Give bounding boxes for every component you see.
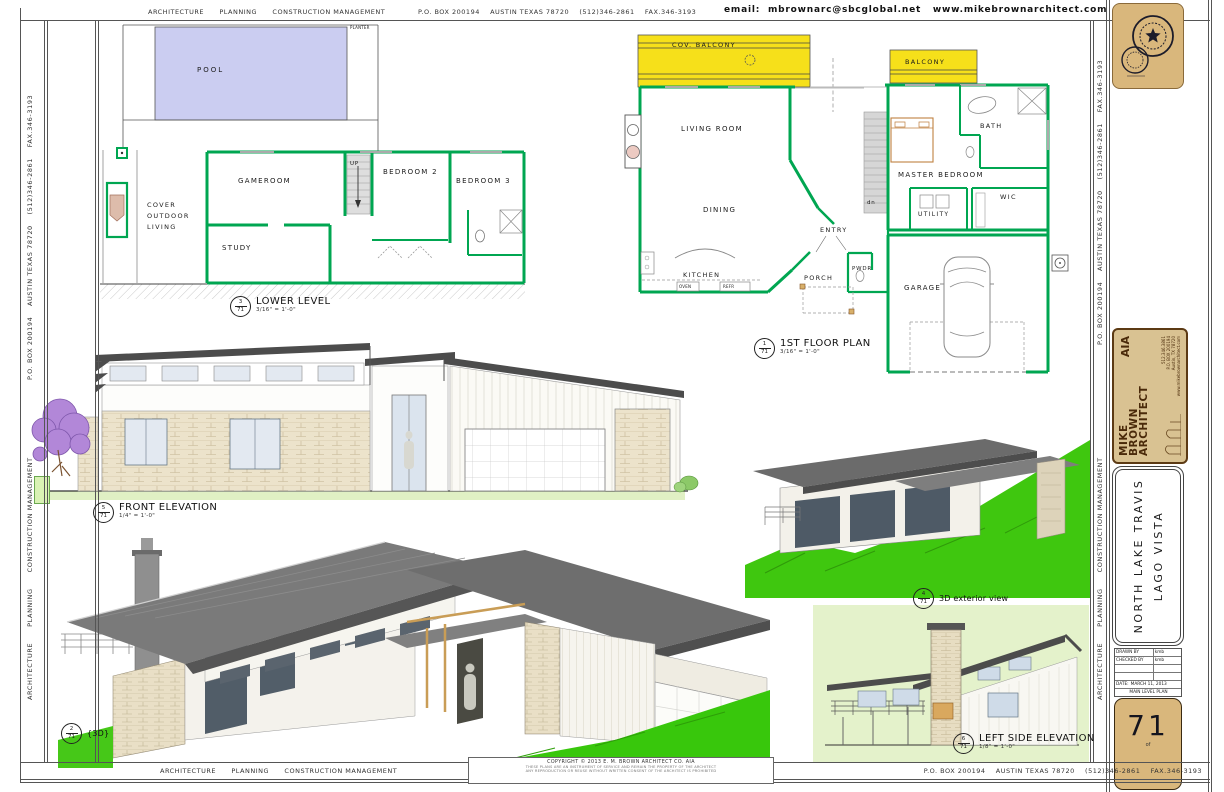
architectural-drawing-sheet: ARCHITECTURE PLANNING CONSTRUCTION MANAG… <box>0 0 1224 792</box>
view-scale: 1/8" = 1'-0" <box>979 744 1095 750</box>
view-title: LEFT SIDE ELEVATION <box>979 733 1095 744</box>
date-value: MARCH 11, 2013 <box>1131 681 1167 688</box>
architect-logo-card: MIKE BROWN ARCHITECT AIA 512.346.3861 P.… <box>1112 328 1188 464</box>
room-label-utility: UTILITY <box>918 211 949 218</box>
sheet-number: 71 <box>1115 709 1181 742</box>
logo-name: MIKE BROWN ARCHITECT <box>1119 386 1149 456</box>
drawn-by-value: kmb <box>1154 649 1181 656</box>
bottombar-firm-text: ARCHITECTURE PLANNING CONSTRUCTION MANAG… <box>160 767 397 775</box>
checked-by-label: CHECKED BY <box>1115 657 1154 664</box>
exterior-3d-drawing <box>745 413 1090 598</box>
architect-seal <box>1112 3 1184 89</box>
sheet-of: of <box>1115 742 1181 748</box>
room-label-bath: BATH <box>980 122 1002 130</box>
lower-level-plan-drawing <box>60 18 580 308</box>
room-label-gameroom: GAMEROOM <box>238 177 291 185</box>
room-label-study: STUDY <box>222 244 252 252</box>
room-label-pwdr: PWDR <box>852 266 872 272</box>
sheet-number-box: 71 of <box>1114 698 1182 790</box>
checked-by-value: kmb <box>1154 657 1181 664</box>
right-margin-firm-text: ARCHITECTURE PLANNING CONSTRUCTION MANAG… <box>1096 457 1104 700</box>
drawn-by-label: DRAWN BY <box>1115 649 1154 656</box>
room-label-cover-outdoor-living: COVER OUTDOOR LIVING <box>147 200 203 233</box>
view-title: LOWER LEVEL <box>256 296 330 307</box>
view-label-exterior-3d: 4 71 3D exterior view <box>913 588 1008 609</box>
room-label-oven: OVEN <box>679 284 691 289</box>
plan-title: MAIN LEVEL PLAN <box>1129 689 1167 696</box>
room-label-kitchen: KITCHEN <box>683 271 720 279</box>
first-floor-plan-drawing <box>620 30 1075 380</box>
right-margin-address-text: P.O. BOX 200194 AUSTIN TEXAS 78720 (512)… <box>1096 60 1104 345</box>
view-title: FRONT ELEVATION <box>119 502 217 513</box>
logo-building-sketch-icon <box>1161 414 1181 456</box>
detail-bubble-big-3d: 2 71 <box>61 723 82 744</box>
room-label-bedroom2: BEDROOM 2 <box>383 168 438 176</box>
room-label-balcony: BALCONY <box>905 58 945 66</box>
bottombar-address-text: P.O. BOX 200194 AUSTIN TEXAS 78720 (512)… <box>924 767 1202 775</box>
view-label-left-side-elevation: 6 71 LEFT SIDE ELEVATION 1/8" = 1'-0" <box>953 733 1095 754</box>
view-label-first-floor: 1 71 1ST FLOOR PLAN 3/16" = 1'-0" <box>754 338 871 359</box>
detail-bubble-lower-level: 3 71 <box>230 296 251 317</box>
left-margin-address-text: P.O. BOX 200194 AUSTIN TEXAS 78720 (512)… <box>26 95 34 380</box>
room-label-cov-balcony: COV. BALCONY <box>672 41 736 49</box>
date-label: DATE: <box>1116 681 1129 688</box>
project-name-line2: LAGO VISTA <box>1152 511 1165 602</box>
big-3d-drawing <box>55 526 770 768</box>
room-label-dn: dn <box>867 200 876 206</box>
room-label-living-room: LIVING ROOM <box>681 125 743 133</box>
room-label-refr: REFR <box>723 284 734 289</box>
room-label-up: UP <box>350 161 359 167</box>
copyright-line3: ANY REPRODUCTION OR REUSE WITHOUT WRITTE… <box>469 769 773 773</box>
view-scale: 3/16" = 1'-0" <box>256 307 330 313</box>
view-title: 1ST FLOOR PLAN <box>780 338 871 349</box>
view-scale: 3/16" = 1'-0" <box>780 349 871 355</box>
room-label-dining: DINING <box>703 206 736 214</box>
logo-contact: 512.346.3861 P.O. BOX 200194 Austin, TX … <box>1161 336 1181 396</box>
view-title: {3D} <box>87 729 109 739</box>
logo-aia: AIA <box>1119 336 1132 357</box>
room-label-entry: ENTRY <box>820 226 848 234</box>
detail-bubble-first-floor: 1 71 <box>754 338 775 359</box>
topbar-firm-text: ARCHITECTURE PLANNING CONSTRUCTION MANAG… <box>148 8 385 16</box>
seal-stamp-icon <box>1113 4 1183 88</box>
room-label-master-bedroom: MASTER BEDROOM <box>898 171 984 179</box>
project-name-line1: NORTH LAKE TRAVIS <box>1132 479 1145 634</box>
room-label-bedroom3: BEDROOM 3 <box>456 177 511 185</box>
detail-bubble-exterior-3d: 4 71 <box>913 588 934 609</box>
room-label-porch: PORCH <box>804 274 833 282</box>
detail-bubble-left-side: 6 71 <box>953 733 974 754</box>
copyright-box: COPYRIGHT © 2013 E. M. BROWN ARCHITECT C… <box>468 757 774 784</box>
left-margin-firm-text: ARCHITECTURE PLANNING CONSTRUCTION MANAG… <box>26 457 34 700</box>
view-label-front-elevation: 5 71 FRONT ELEVATION 1/4" = 1'-0" <box>93 502 217 523</box>
view-label-big-3d: 2 71 {3D} <box>61 723 109 744</box>
front-elevation-drawing <box>40 333 700 505</box>
project-name-box: NORTH LAKE TRAVIS LAGO VISTA <box>1112 466 1184 646</box>
view-scale: 1/4" = 1'-0" <box>119 513 217 519</box>
topbar-email-text: email: mbrownarc@sbcglobal.net www.mikeb… <box>724 5 1107 15</box>
room-label-garage: GARAGE <box>904 284 941 292</box>
room-label-planter: PLANTER <box>350 25 370 30</box>
room-label-wic: WIC <box>1000 193 1017 201</box>
title-info-table: DRAWN BYkmb CHECKED BYkmb DATE:MARCH 11,… <box>1114 648 1182 697</box>
room-label-pool: POOL <box>197 66 224 74</box>
topbar-address-text: P.O. BOX 200194 AUSTIN TEXAS 78720 (512)… <box>418 8 696 16</box>
view-label-lower-level: 3 71 LOWER LEVEL 3/16" = 1'-0" <box>230 296 330 317</box>
detail-bubble-front-elevation: 5 71 <box>93 502 114 523</box>
view-title: 3D exterior view <box>939 594 1008 604</box>
